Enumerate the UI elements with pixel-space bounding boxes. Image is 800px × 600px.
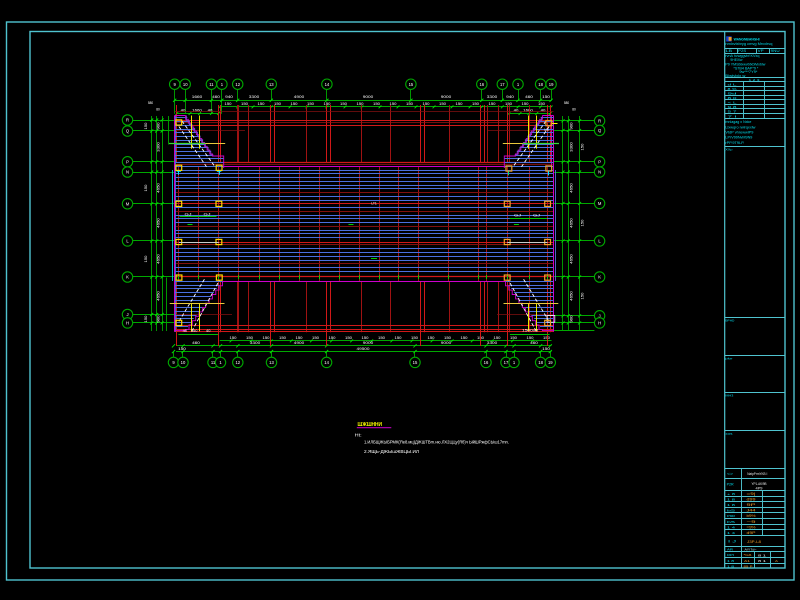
svg-text:K: K xyxy=(598,275,601,280)
svg-text:R: R xyxy=(126,118,129,123)
svg-text:LPrV99NvM9N9: LPrV99NvM9N9 xyxy=(725,136,752,140)
svg-text:K: K xyxy=(126,275,129,280)
svg-text:1 8: 1 8 xyxy=(727,564,735,568)
svg-text:150: 150 xyxy=(144,315,148,322)
svg-text:40: 40 xyxy=(183,329,188,333)
svg-text:8 1: 8 1 xyxy=(758,553,767,557)
svg-text:3300: 3300 xyxy=(487,341,497,345)
svg-text:=9%: =9% xyxy=(747,525,756,529)
svg-text:150: 150 xyxy=(362,336,369,340)
svg-text:150: 150 xyxy=(144,122,148,129)
svg-text:7 I: 7 I xyxy=(728,114,737,118)
svg-text:4900: 4900 xyxy=(294,341,304,345)
svg-text:8 0: 8 0 xyxy=(728,96,738,100)
svg-text:P: P xyxy=(598,159,601,164)
svg-text:RPI: RPI xyxy=(727,553,734,557)
svg-text:M8: M8 xyxy=(544,128,549,132)
svg-text:150: 150 xyxy=(241,102,248,106)
svg-text:460: 460 xyxy=(525,95,533,99)
svg-text:150: 150 xyxy=(378,336,385,340)
svg-text:150: 150 xyxy=(411,336,418,340)
svg-text:150: 150 xyxy=(144,255,148,262)
svg-text:WANGNBANGHI: WANGNBANGHI xyxy=(734,37,760,41)
svg-text:4P9: 4P9 xyxy=(756,486,763,490)
svg-text:I J: I J xyxy=(728,540,737,544)
svg-text:< L: < L xyxy=(728,101,738,105)
svg-text:150: 150 xyxy=(543,336,550,340)
svg-text:H: H xyxy=(126,321,129,326)
svg-text:150: 150 xyxy=(307,102,314,106)
svg-text:150: 150 xyxy=(505,102,512,106)
svg-text:H: H xyxy=(598,321,601,326)
svg-text:80: 80 xyxy=(572,108,576,112)
svg-text:150: 150 xyxy=(373,102,380,106)
svg-text:150: 150 xyxy=(246,336,253,340)
svg-text:150: 150 xyxy=(444,336,451,340)
svg-text:150: 150 xyxy=(428,336,435,340)
svg-text:VP: VP xyxy=(758,49,764,53)
svg-text:3300: 3300 xyxy=(487,95,497,99)
svg-text:d99: d99 xyxy=(747,497,756,501)
svg-text:150: 150 xyxy=(312,336,319,340)
svg-text:3300: 3300 xyxy=(250,341,260,345)
svg-text:150: 150 xyxy=(423,102,430,106)
svg-text:150: 150 xyxy=(324,102,331,106)
svg-text:P2R: P2R xyxy=(727,483,735,487)
svg-text:b5: b5 xyxy=(727,509,736,513)
svg-text:4650: 4650 xyxy=(157,218,161,228)
svg-text:XXp: XXp xyxy=(725,148,732,152)
svg-text:10: 10 xyxy=(181,360,186,365)
svg-text:ШЖШННИ: ШЖШННИ xyxy=(358,422,383,428)
svg-text:150: 150 xyxy=(340,102,347,106)
svg-text:150: 150 xyxy=(191,329,198,333)
svg-text:4650: 4650 xyxy=(157,183,161,193)
svg-text:A1: A1 xyxy=(744,559,751,563)
svg-text:nmlxvlxbryg cmvg Mrvxlrvq: nmlxvlxbryg cmvg Mrvxlrvq xyxy=(725,42,772,46)
svg-text:150: 150 xyxy=(406,102,413,106)
svg-text:40: 40 xyxy=(206,329,211,333)
svg-text:1 8: 1 8 xyxy=(727,497,736,501)
svg-text:9000: 9000 xyxy=(441,341,451,345)
svg-text:M: M xyxy=(126,201,130,206)
svg-text:N: N xyxy=(598,170,601,175)
svg-text:3300: 3300 xyxy=(249,95,259,99)
svg-text:13: 13 xyxy=(269,82,274,87)
svg-text:900: 900 xyxy=(157,315,161,322)
svg-text:150: 150 xyxy=(357,102,364,106)
svg-text:89 P: 89 P xyxy=(744,564,753,568)
svg-text:150: 150 xyxy=(230,336,237,340)
svg-text:J: J xyxy=(126,312,128,317)
svg-text:b9%: b9% xyxy=(747,514,756,518)
svg-text:940: 940 xyxy=(506,95,514,99)
svg-text:900: 900 xyxy=(570,315,574,322)
svg-text:150: 150 xyxy=(329,336,336,340)
svg-text:580: 580 xyxy=(564,101,570,105)
svg-text:460: 460 xyxy=(192,341,200,345)
svg-text:80: 80 xyxy=(156,108,160,112)
svg-text:150: 150 xyxy=(439,102,446,106)
svg-text:940: 940 xyxy=(225,95,233,99)
svg-text:14: 14 xyxy=(324,360,329,365)
svg-text:150: 150 xyxy=(279,336,286,340)
svg-text:19: 19 xyxy=(549,82,554,87)
svg-text:8 %: 8 % xyxy=(728,87,738,91)
svg-text:GJ: GJ xyxy=(533,214,540,218)
svg-text:150: 150 xyxy=(345,336,352,340)
svg-text:b5: b5 xyxy=(727,520,736,524)
svg-text:NatpPrmYKB I: NatpPrmYKB I xyxy=(747,472,767,476)
svg-text:+ 8: + 8 xyxy=(727,492,736,496)
svg-text:4650: 4650 xyxy=(157,254,161,264)
svg-text:P2S: P2S xyxy=(738,49,746,53)
svg-text:J44: J44 xyxy=(747,509,756,513)
svg-text:9P: 9P xyxy=(747,503,756,507)
svg-text:9000: 9000 xyxy=(441,95,451,99)
svg-text:9d: 9d xyxy=(728,91,738,95)
svg-text:*G6: *G6 xyxy=(744,553,753,557)
svg-text:d L: d L xyxy=(728,82,738,86)
svg-text:150: 150 xyxy=(263,336,270,340)
svg-text:4650: 4650 xyxy=(570,254,574,264)
svg-text:<>: <> xyxy=(727,472,733,476)
svg-text:J3P-L8: J3P-L8 xyxy=(747,540,761,544)
svg-text:150: 150 xyxy=(581,292,585,299)
svg-text:4650: 4650 xyxy=(570,183,574,193)
svg-text:GJ: GJ xyxy=(204,213,211,217)
svg-text:10: 10 xyxy=(183,82,188,87)
svg-text:150: 150 xyxy=(178,347,186,351)
svg-text:12: 12 xyxy=(235,82,240,87)
svg-text:3300: 3300 xyxy=(157,142,161,152)
svg-text:1 8: 1 8 xyxy=(727,503,736,507)
svg-text:M: M xyxy=(598,201,602,206)
svg-text:4900: 4900 xyxy=(294,95,304,99)
svg-text:VtdP vhrewwlP9: VtdP vhrewwlP9 xyxy=(725,130,753,134)
svg-text:N: N xyxy=(126,170,129,175)
svg-text:A: A xyxy=(775,559,778,563)
svg-text:=9|: =9| xyxy=(747,492,756,496)
svg-text:150: 150 xyxy=(522,102,529,106)
svg-text:13: 13 xyxy=(269,360,274,365)
svg-text:580: 580 xyxy=(148,101,154,105)
svg-text:150: 150 xyxy=(489,102,496,106)
svg-text:R: R xyxy=(598,118,601,123)
svg-text:150: 150 xyxy=(494,336,501,340)
svg-text:14: 14 xyxy=(325,82,330,87)
svg-text:8 1: 8 1 xyxy=(758,559,767,563)
svg-text:1.ИЛБЩЖЫБРМК(Яе8.мц)ДЖШТВm.ню.: 1.ИЛБЩЖЫБРМК(Яе8.мц)ДЖШТВm.ню.ЛХ2ЦЦу(Яб)… xyxy=(364,439,509,445)
svg-text:49500: 49500 xyxy=(357,347,370,351)
svg-text:pke: pke xyxy=(725,356,732,360)
svg-text:mnlagag x Nxke: mnlagag x Nxke xyxy=(725,120,751,124)
svg-text:17: 17 xyxy=(500,82,505,87)
svg-text:19: 19 xyxy=(548,360,553,365)
svg-text:150: 150 xyxy=(296,336,303,340)
svg-text:150: 150 xyxy=(581,219,585,226)
svg-text:GJ: GJ xyxy=(185,213,192,217)
svg-text:150: 150 xyxy=(542,95,550,99)
svg-text:900: 900 xyxy=(570,122,574,129)
svg-text:3300: 3300 xyxy=(570,142,574,152)
svg-text:XX5: XX5 xyxy=(725,432,732,436)
svg-text:9000: 9000 xyxy=(363,95,373,99)
svg-text:150: 150 xyxy=(538,102,545,106)
svg-text:150: 150 xyxy=(581,143,585,150)
svg-text:18: 18 xyxy=(538,82,543,87)
svg-text:MH3: MH3 xyxy=(725,393,733,397)
svg-text:9NU: 9NU xyxy=(771,49,781,53)
svg-text:5 7: 5 7 xyxy=(728,110,738,114)
svg-text:1 8: 1 8 xyxy=(727,559,735,563)
svg-text:2.ЯЩЬ-ДЖЫшЖВЦЫ.ИЛ: 2.ЯЩЬ-ДЖЫшЖВЦЫ.ИЛ xyxy=(364,449,419,454)
svg-text:LB: LB xyxy=(726,49,733,53)
svg-text:1660: 1660 xyxy=(192,95,202,99)
svg-text:150: 150 xyxy=(274,102,281,106)
svg-text:150: 150 xyxy=(258,102,265,106)
svg-text:4650: 4650 xyxy=(570,218,574,228)
svg-text:18: 18 xyxy=(538,360,543,365)
svg-text:d9P: d9P xyxy=(747,531,756,535)
svg-text:Ht:: Ht: xyxy=(355,433,362,438)
svg-text:11: 11 xyxy=(209,82,214,87)
svg-text:9000: 9000 xyxy=(363,341,373,345)
svg-text:4650: 4650 xyxy=(157,291,161,301)
svg-text:1 4: 1 4 xyxy=(727,525,736,529)
svg-text:BPHD: BPHD xyxy=(725,319,735,323)
svg-text:150: 150 xyxy=(225,102,232,106)
svg-text:150: 150 xyxy=(472,102,479,106)
svg-text:150: 150 xyxy=(510,336,517,340)
svg-text:16: 16 xyxy=(484,360,489,365)
svg-text:150: 150 xyxy=(456,102,463,106)
svg-text:P9R: P9R xyxy=(727,514,736,518)
svg-text:17: 17 xyxy=(504,360,509,365)
svg-text:GJ: GJ xyxy=(514,214,521,218)
svg-text:15: 15 xyxy=(409,82,414,87)
svg-text:Llxwqro rwlrqxxlw: Llxwqro rwlrqxxlw xyxy=(725,125,756,129)
svg-text:15: 15 xyxy=(413,360,418,365)
svg-text:LT1: LT1 xyxy=(371,202,377,206)
svg-text:460: 460 xyxy=(530,341,538,345)
svg-text:~9: ~9 xyxy=(747,520,757,524)
svg-text:150: 150 xyxy=(291,102,298,106)
svg-text:P: P xyxy=(126,159,129,164)
svg-text:460: 460 xyxy=(212,95,220,99)
svg-text:1 4: 1 4 xyxy=(727,531,736,535)
svg-text:9 8: 9 8 xyxy=(728,105,738,109)
svg-text:150: 150 xyxy=(527,336,534,340)
svg-text:150: 150 xyxy=(542,347,550,351)
svg-text:rPP.9T9LP.: rPP.9T9LP. xyxy=(725,141,744,145)
svg-text:4650: 4650 xyxy=(570,291,574,301)
svg-text:12: 12 xyxy=(235,360,240,365)
svg-text:150: 150 xyxy=(395,336,402,340)
svg-text:16: 16 xyxy=(479,82,484,87)
svg-text:150: 150 xyxy=(461,336,468,340)
svg-text:1500x3: 1500x3 xyxy=(522,329,538,333)
svg-text:900: 900 xyxy=(157,122,161,129)
svg-text:150: 150 xyxy=(144,184,148,191)
